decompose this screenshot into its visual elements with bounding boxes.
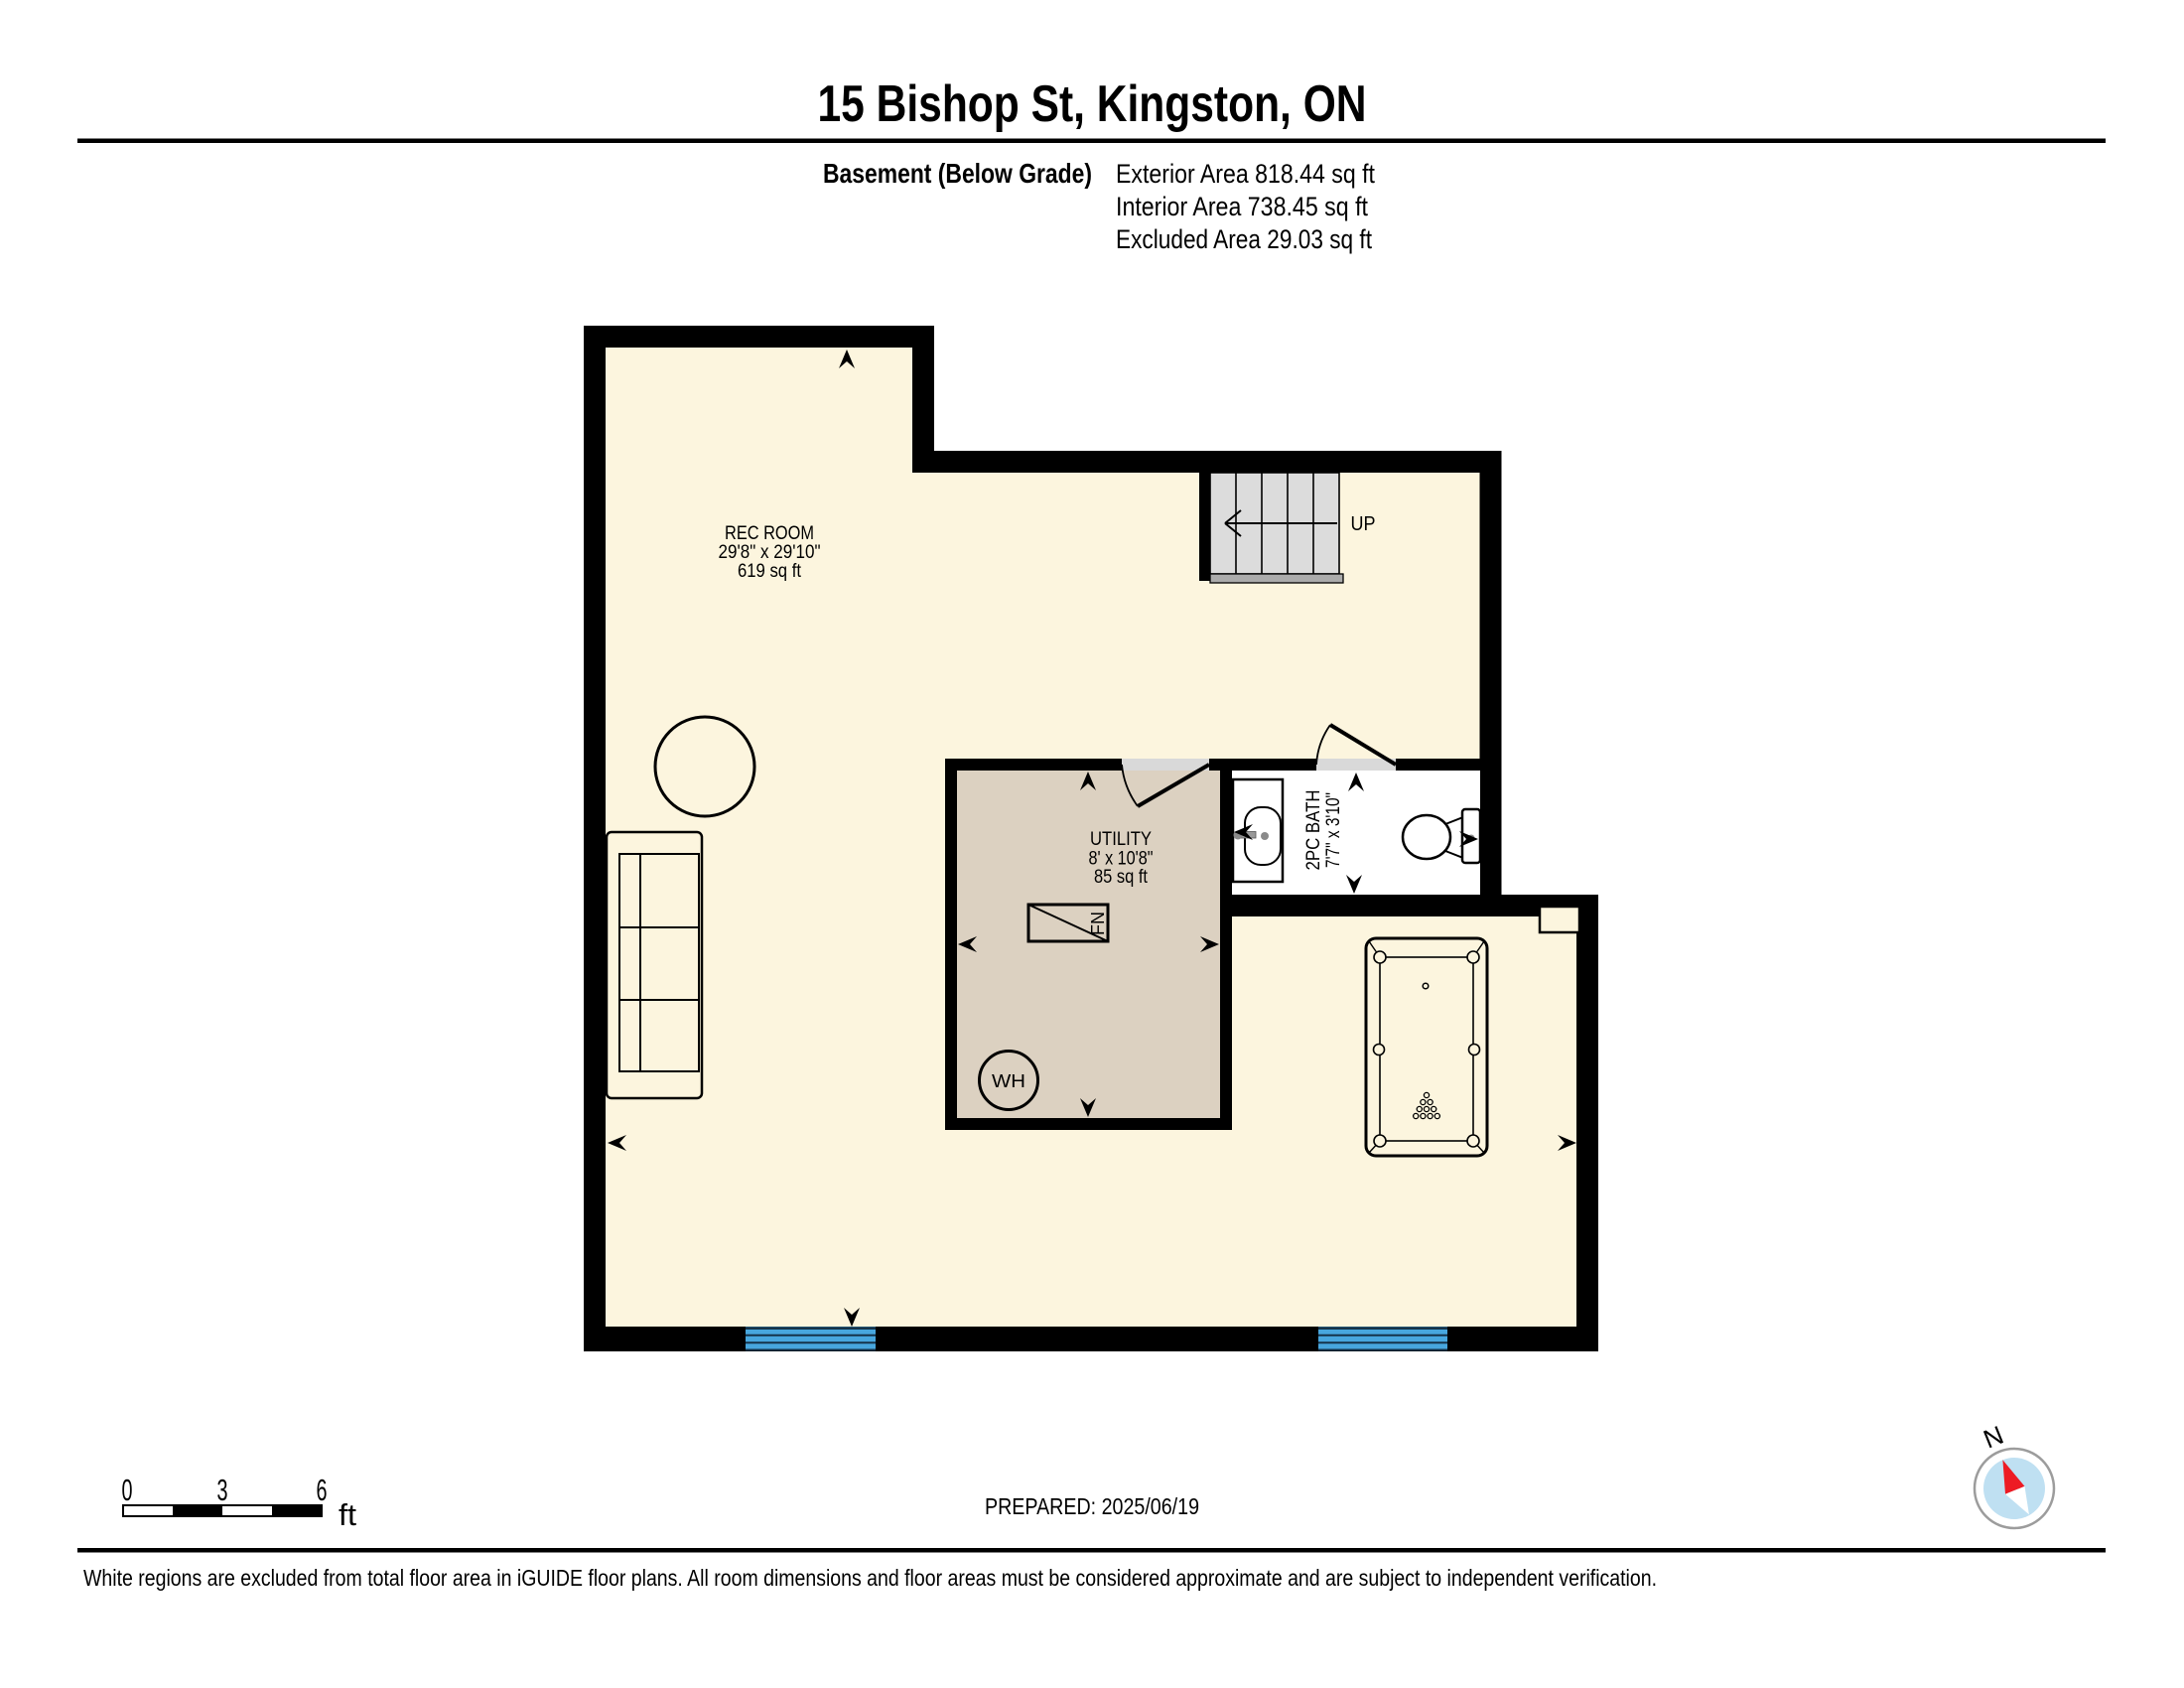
svg-text:Basement (Below Grade): Basement (Below Grade) <box>823 158 1092 189</box>
svg-text:Interior Area 738.45 sq ft: Interior Area 738.45 sq ft <box>1116 192 1368 221</box>
svg-text:2PC BATH: 2PC BATH <box>1302 790 1324 871</box>
svg-text:White regions are excluded fro: White regions are excluded from total fl… <box>83 1565 1657 1591</box>
svg-text:PREPARED: 2025/06/19: PREPARED: 2025/06/19 <box>985 1493 1199 1519</box>
svg-text:Exterior Area 818.44 sq ft: Exterior Area 818.44 sq ft <box>1116 159 1375 189</box>
svg-text:FN: FN <box>1088 912 1108 935</box>
svg-text:0: 0 <box>122 1473 133 1507</box>
svg-text:6: 6 <box>317 1473 328 1507</box>
svg-text:619 sq ft: 619 sq ft <box>738 560 801 582</box>
svg-text:85 sq ft: 85 sq ft <box>1094 866 1148 888</box>
svg-text:UP: UP <box>1351 513 1376 535</box>
svg-text:ft: ft <box>339 1497 356 1532</box>
svg-text:3: 3 <box>217 1473 228 1507</box>
svg-text:WH: WH <box>992 1071 1025 1091</box>
svg-text:7'7" x 3'10": 7'7" x 3'10" <box>1322 792 1344 868</box>
svg-text:15 Bishop St, Kingston, ON: 15 Bishop St, Kingston, ON <box>818 75 1367 133</box>
svg-text:Excluded Area 29.03 sq ft: Excluded Area 29.03 sq ft <box>1116 224 1372 254</box>
